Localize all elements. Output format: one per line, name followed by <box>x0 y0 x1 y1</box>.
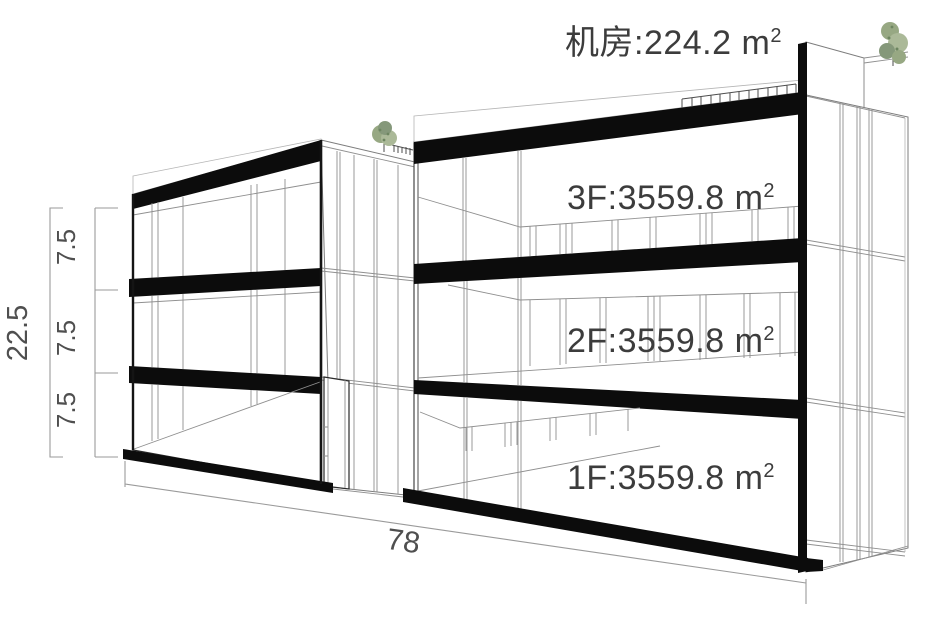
right-roof-tree <box>879 22 908 66</box>
left-building-shaft <box>324 377 349 489</box>
dim-total-width: 78 <box>385 523 423 560</box>
left-building <box>123 121 415 496</box>
left-roof-tree <box>372 121 397 152</box>
dim-floor-height-bottom: 7.5 <box>51 392 81 428</box>
dim-total-height: 22.5 <box>2 305 34 361</box>
floor-label-1f: 1F:3559.8 m2 <box>567 459 775 497</box>
right-corner-edge <box>798 42 807 573</box>
massing-diagram-page: 22.5 7.5 7.5 7.5 78 机房:224.2 m2 3F:3559.… <box>0 0 950 630</box>
height-bracket-floors <box>95 208 118 457</box>
left-roof-railing <box>392 145 413 155</box>
dim-floor-height-mid: 7.5 <box>51 320 81 356</box>
floor-label-2f: 2F:3559.8 m2 <box>567 322 775 360</box>
roof-room-label: 机房:224.2 m2 <box>565 24 782 62</box>
floor-label-3f: 3F:3559.8 m2 <box>567 179 775 217</box>
dim-floor-height-top: 7.5 <box>51 229 81 265</box>
building-massing-drawing: 22.5 7.5 7.5 7.5 78 机房:224.2 m2 3F:3559.… <box>0 0 950 630</box>
